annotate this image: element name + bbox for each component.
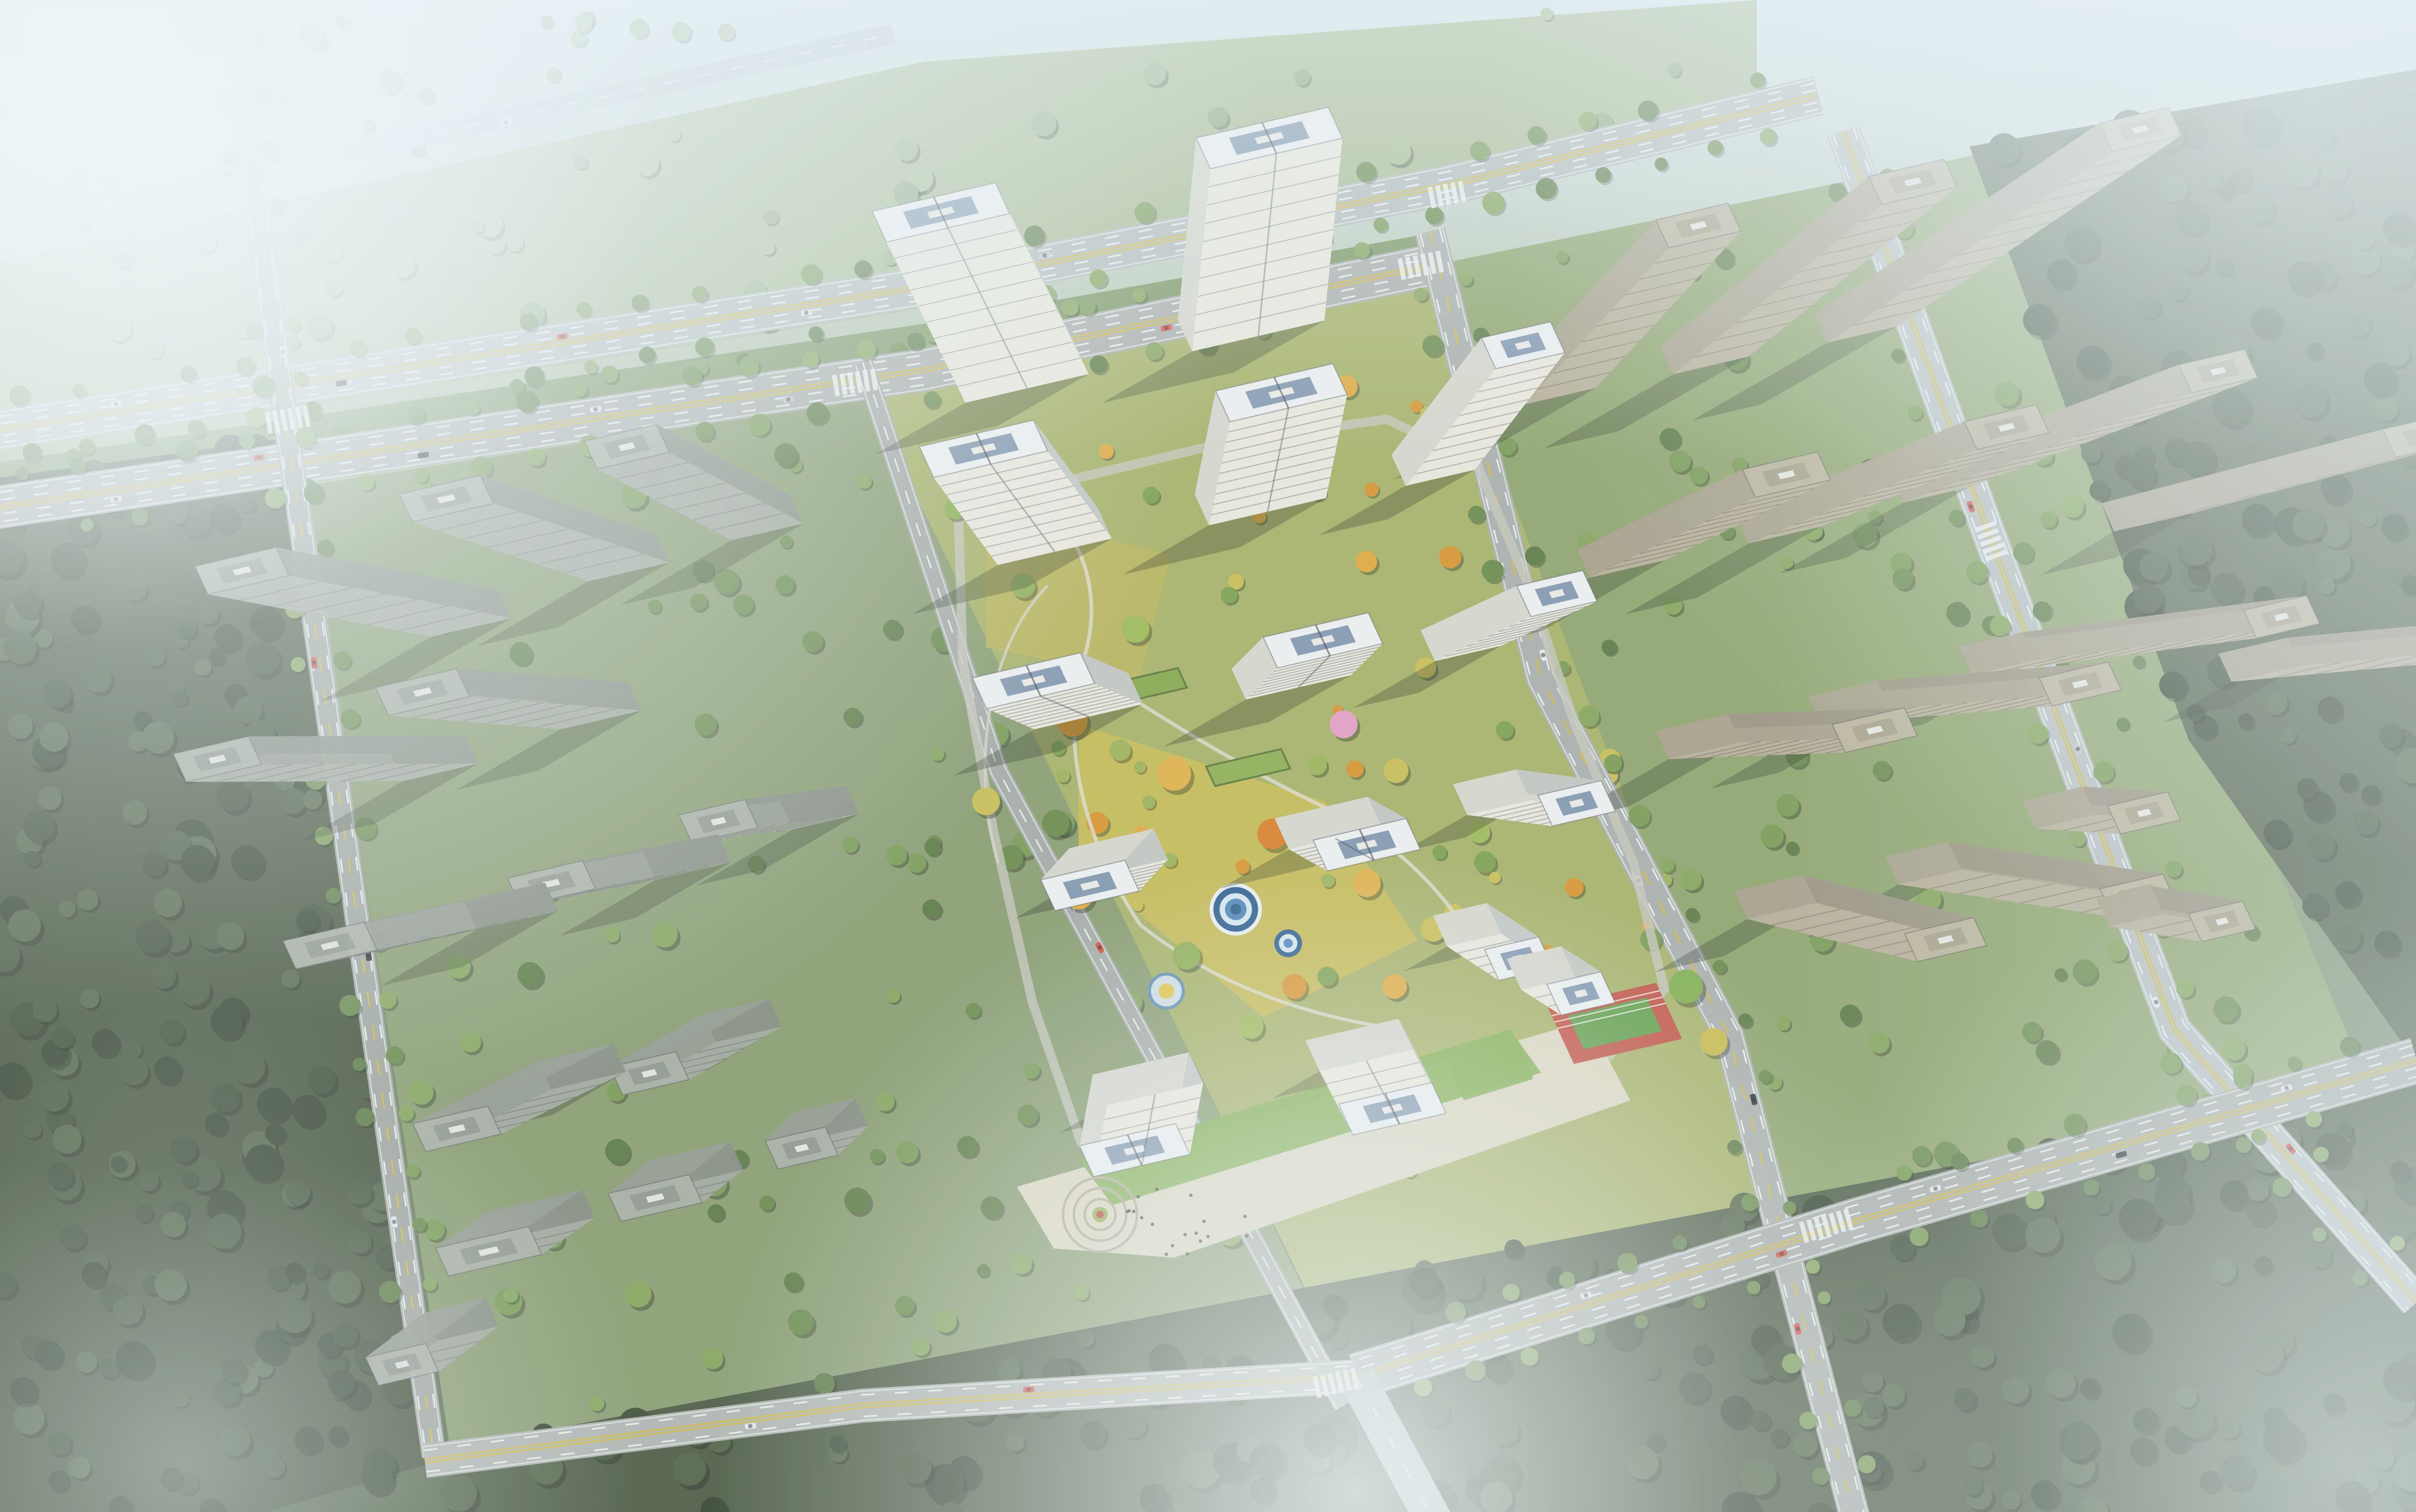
aerial-render-scene [0, 0, 2416, 1512]
aerial-render-viewport [0, 0, 2416, 1512]
haze-tint [0, 0, 2416, 1512]
fog-haze-layer [0, 0, 2416, 1512]
